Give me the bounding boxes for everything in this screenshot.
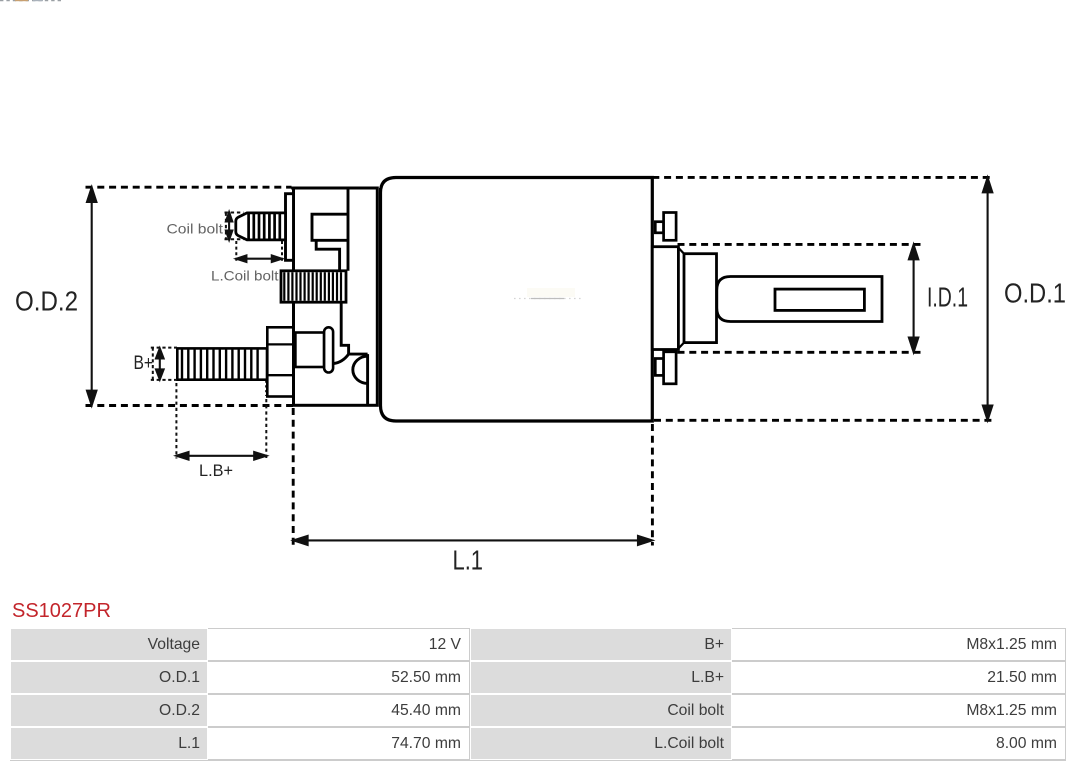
svg-text:O.D.1: O.D.1 <box>1004 278 1066 309</box>
svg-text:B+: B+ <box>134 353 154 374</box>
svg-text:I.D.1: I.D.1 <box>927 282 968 313</box>
svg-text:L.Coil bolt: L.Coil bolt <box>211 268 279 284</box>
svg-text:O.D.2: O.D.2 <box>15 286 78 317</box>
svg-text:L.B+: L.B+ <box>199 462 233 480</box>
svg-text:Coil bolt: Coil bolt <box>167 221 224 237</box>
svg-text:L.1: L.1 <box>453 545 484 576</box>
